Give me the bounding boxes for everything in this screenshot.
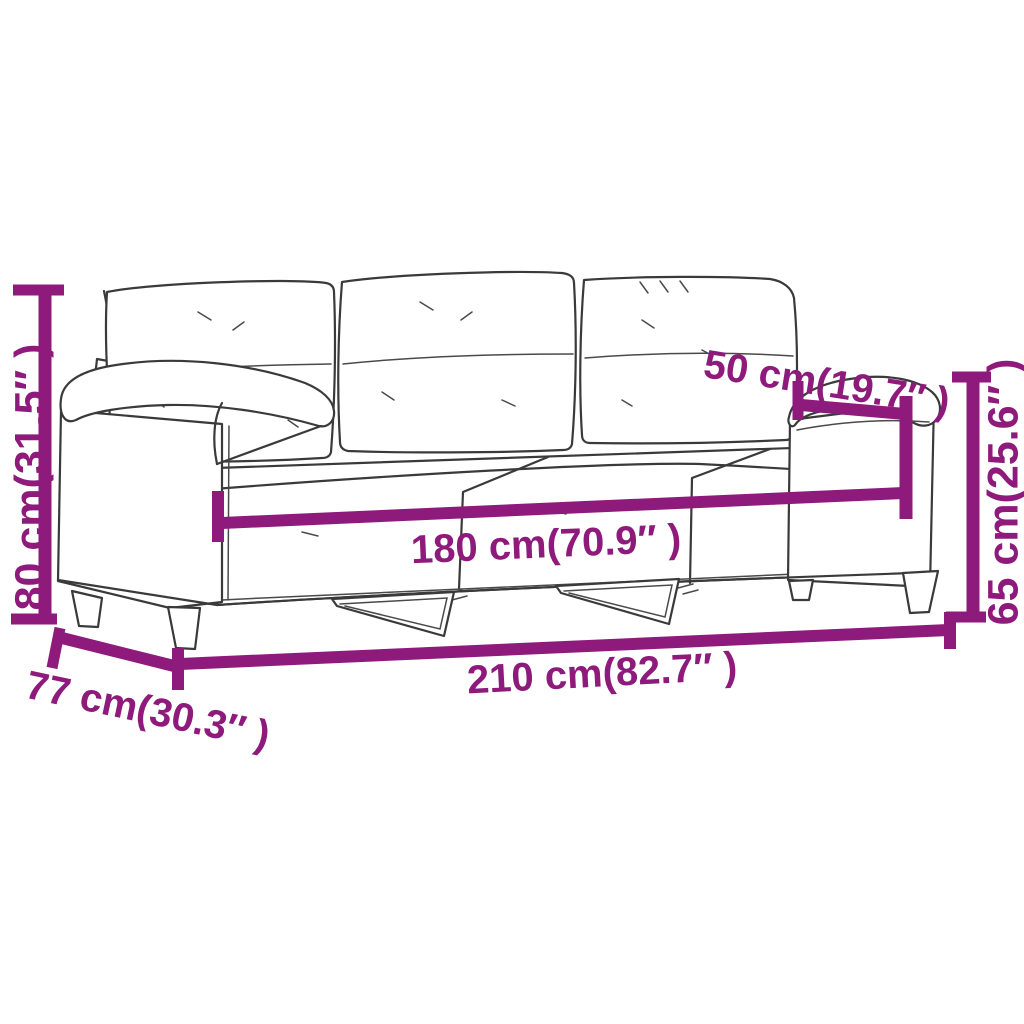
sofa-illustration xyxy=(58,272,940,649)
arm-height-label: 65 cm(25.6″ ) xyxy=(979,359,1024,626)
sofa-dimension-diagram: 80 cm(31.5″ ) 65 cm(25.6″ ) 50 cm(19.7″ … xyxy=(0,0,1024,1024)
dimension-overall-height: 80 cm(31.5″ ) xyxy=(6,290,64,619)
back-cushion-middle xyxy=(338,272,575,452)
product-dimension-image: 80 cm(31.5″ ) 65 cm(25.6″ ) 50 cm(19.7″ … xyxy=(0,0,1024,1024)
dimension-overall-width: 210 cm(82.7″ ) xyxy=(178,612,950,702)
overall-height-label: 80 cm(31.5″ ) xyxy=(6,344,54,611)
dimension-overall-depth: 77 cm(30.3″ ) xyxy=(22,628,274,758)
overall-depth-label: 77 cm(30.3″ ) xyxy=(22,663,274,758)
dimension-arm-height: 65 cm(25.6″ ) xyxy=(946,359,1024,626)
